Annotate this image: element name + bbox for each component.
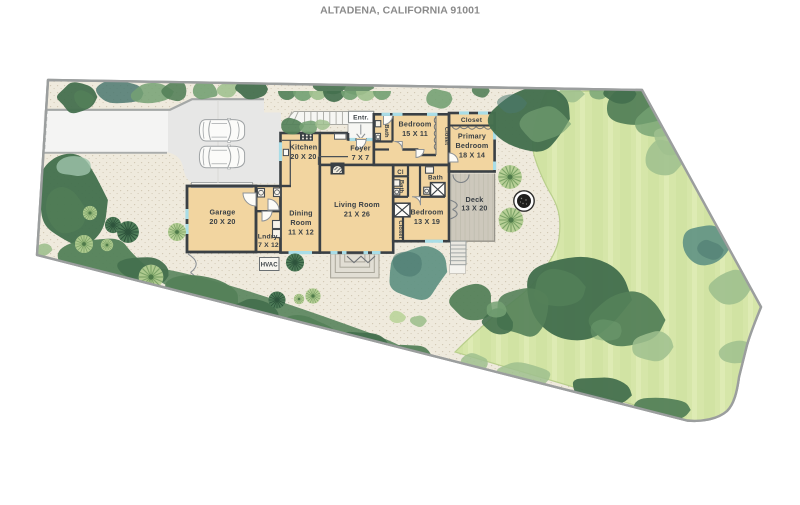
svg-text:Entr.: Entr. (353, 114, 369, 121)
svg-text:Closet: Closet (443, 127, 449, 145)
svg-text:Bath: Bath (398, 180, 404, 194)
svg-text:20 X 20: 20 X 20 (290, 152, 316, 161)
svg-text:7 X 7: 7 X 7 (352, 153, 370, 162)
svg-text:HVAC: HVAC (261, 263, 279, 269)
svg-text:Closet: Closet (461, 117, 483, 124)
svg-text:Bedroom: Bedroom (411, 208, 444, 217)
svg-text:Bath: Bath (428, 174, 443, 181)
svg-text:Kitchen: Kitchen (290, 143, 318, 152)
svg-text:Primary: Primary (458, 132, 486, 141)
svg-text:Cl: Cl (397, 170, 404, 176)
svg-text:Living Room: Living Room (334, 200, 380, 209)
svg-text:Closet: Closet (397, 220, 403, 238)
svg-text:21 X 26: 21 X 26 (344, 210, 370, 219)
svg-text:13 X 19: 13 X 19 (414, 217, 440, 226)
svg-text:20 X 20: 20 X 20 (209, 217, 235, 226)
svg-text:Garage: Garage (210, 208, 236, 217)
svg-text:Dining: Dining (289, 209, 313, 218)
svg-text:Bath: Bath (383, 124, 389, 138)
svg-text:11 X 12: 11 X 12 (288, 228, 314, 237)
svg-text:ALTADENA, CALIFORNIA 91001: ALTADENA, CALIFORNIA 91001 (320, 5, 480, 17)
svg-text:7 X 12: 7 X 12 (258, 242, 279, 249)
svg-text:Bedroom: Bedroom (456, 141, 489, 150)
svg-text:Foyer: Foyer (350, 144, 371, 153)
svg-text:Room: Room (290, 218, 311, 227)
svg-text:Lndry.: Lndry. (258, 234, 279, 241)
svg-text:13 X 20: 13 X 20 (461, 204, 487, 213)
svg-text:15 X 11: 15 X 11 (402, 129, 428, 138)
svg-text:18 X 14: 18 X 14 (459, 151, 485, 160)
svg-text:Bedroom: Bedroom (399, 120, 432, 129)
